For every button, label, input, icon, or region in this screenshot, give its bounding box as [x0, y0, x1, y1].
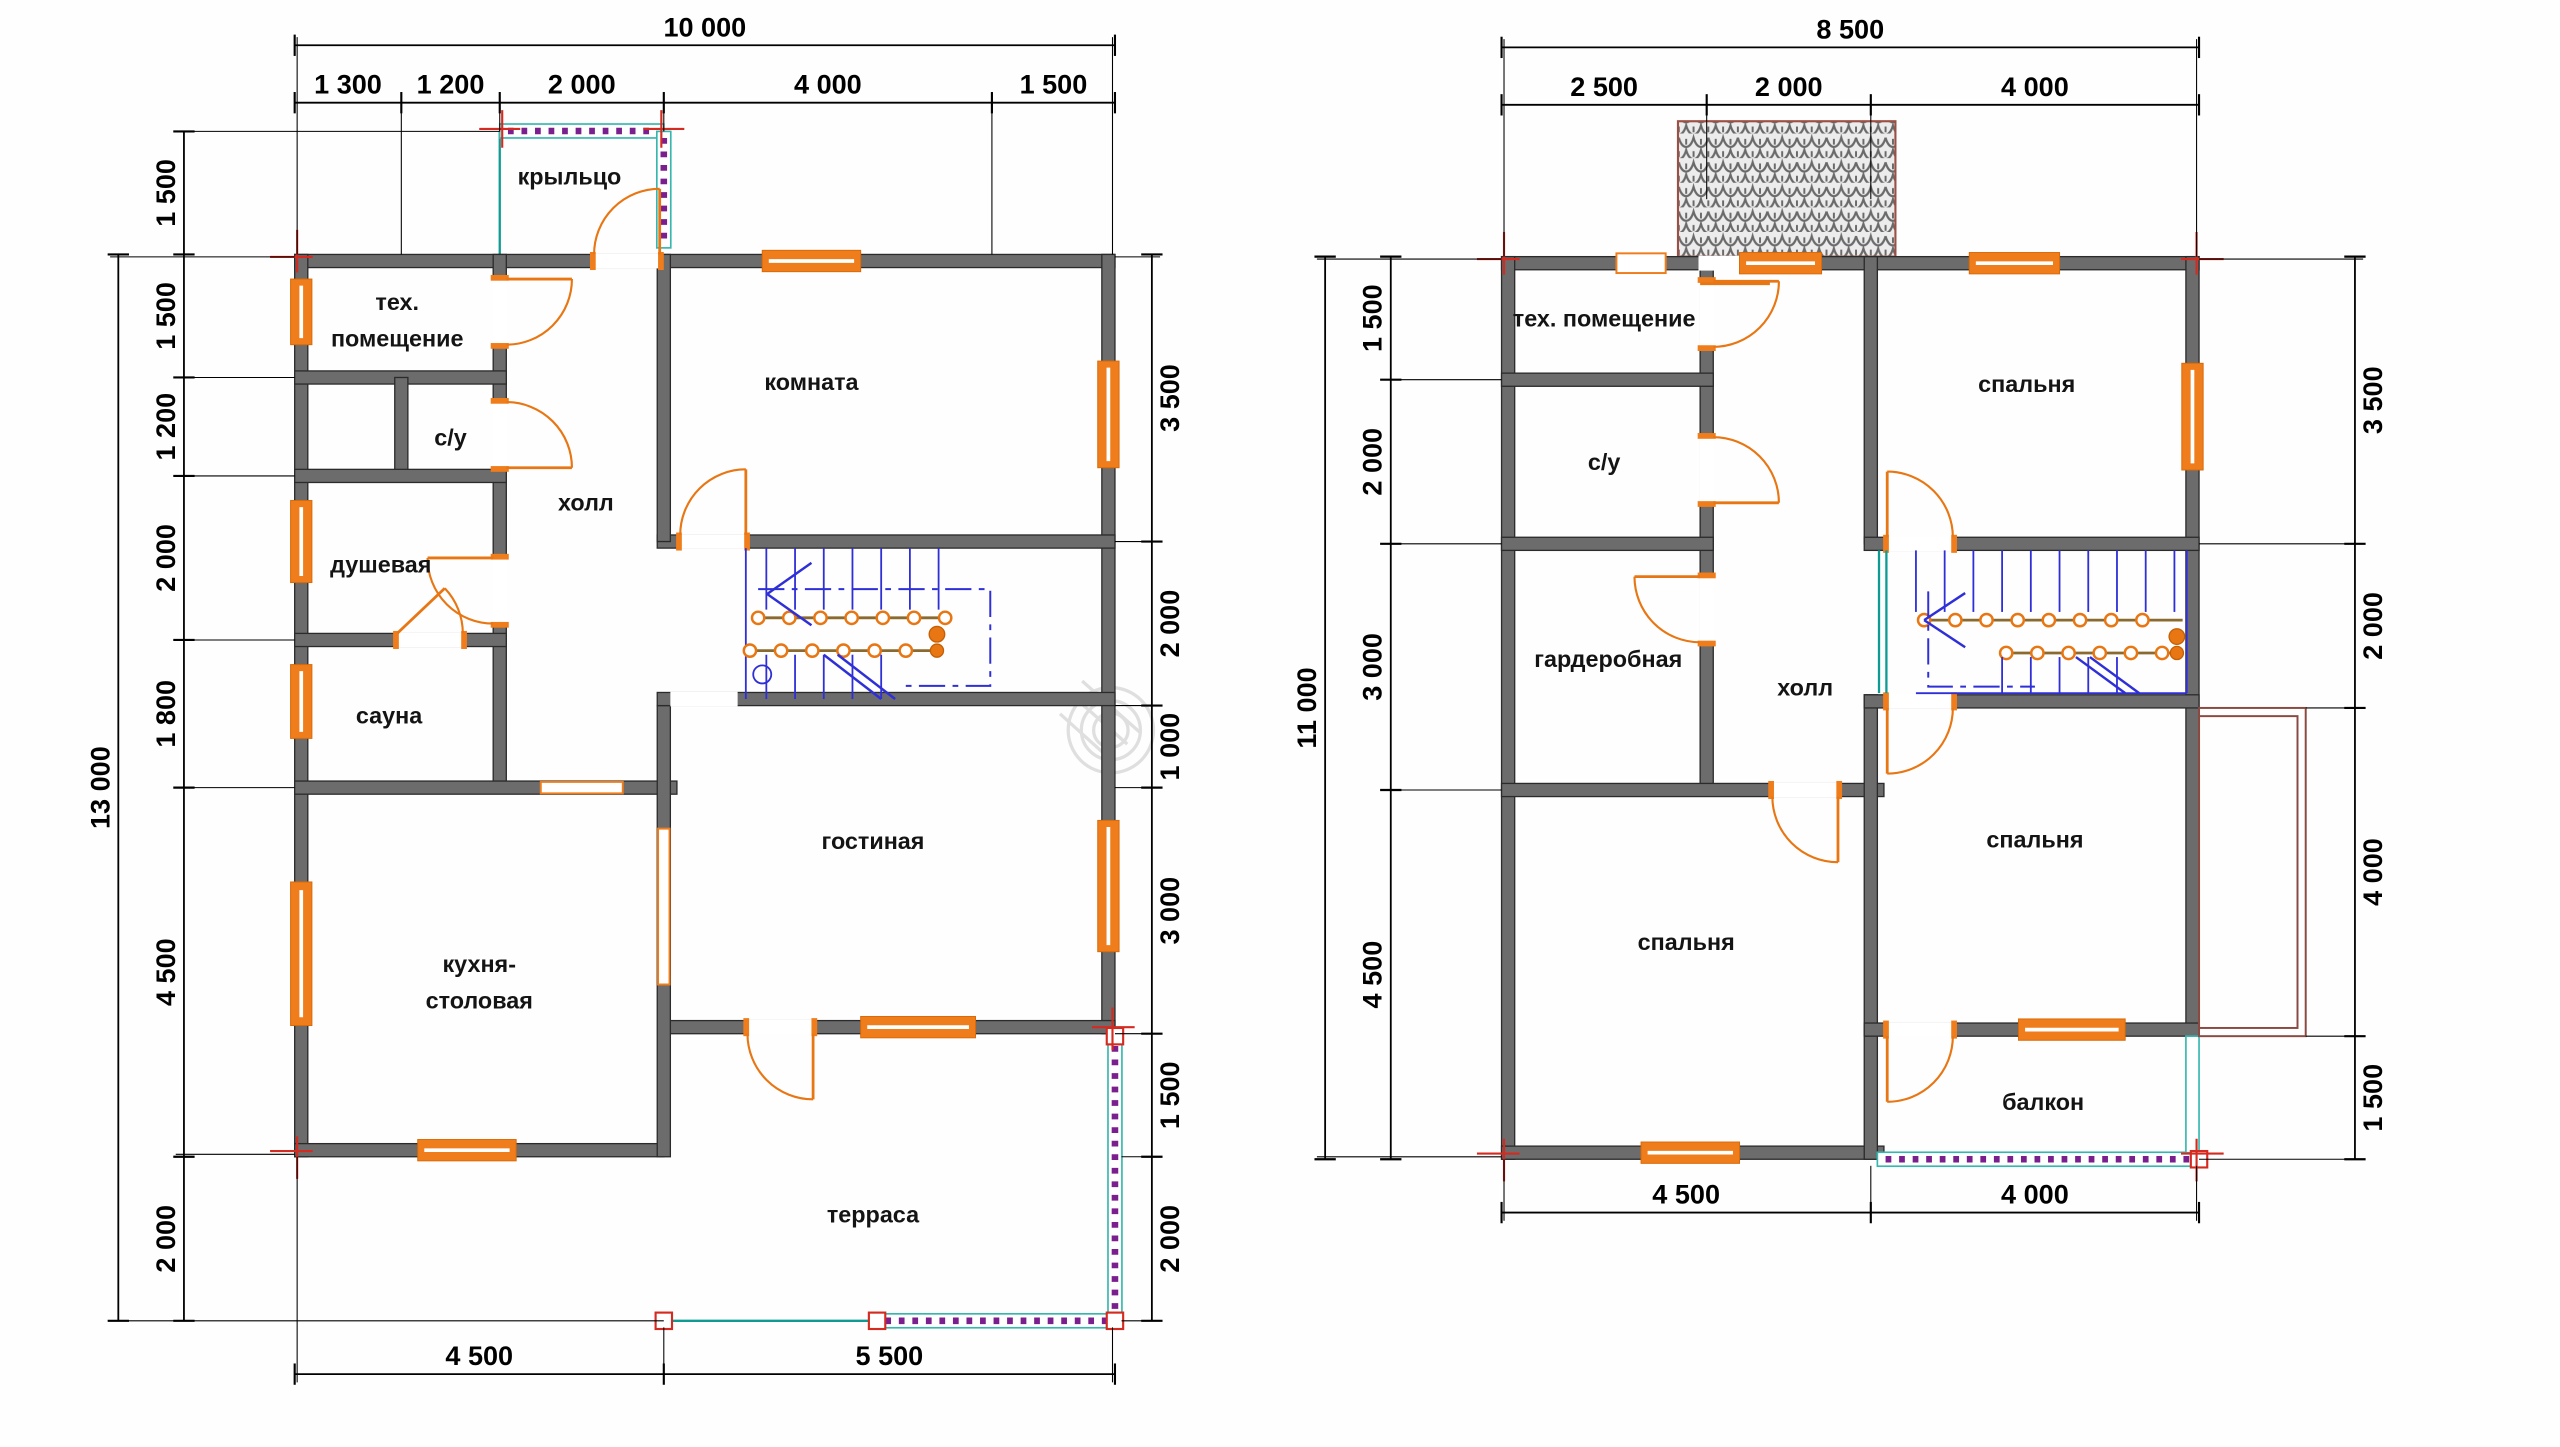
dim-p1-left-4: 1 800 — [151, 680, 181, 748]
dim-p1-top-2: 2 000 — [548, 70, 616, 100]
dim-p2-top-0: 2 500 — [1570, 71, 1638, 102]
dim-p2-right-1: 2 000 — [2357, 592, 2388, 660]
label-tech: тех. помещение — [1513, 305, 1696, 331]
label-kitchen2: столовая — [426, 987, 533, 1013]
label-tech: тех. — [375, 289, 419, 315]
dim-p1-top-0: 1 300 — [314, 70, 382, 100]
label-bedroom-left: спальня — [1638, 929, 1735, 955]
label-wardrobe: гардеробная — [1534, 646, 1682, 672]
label-wc: с/у — [1588, 449, 1621, 475]
label-tech2: помещение — [331, 325, 464, 351]
dim-p1-left-5: 4 500 — [151, 938, 181, 1006]
dim-p2-top-1: 2 000 — [1755, 71, 1823, 102]
floor-plans-drawing: крыльцо тех. помещение с/у душевая сауна… — [0, 0, 2560, 1447]
label-hall: холл — [558, 489, 614, 515]
dim-p1-right-2: 1 000 — [1155, 713, 1185, 781]
dim-p1-right-5: 2 000 — [1155, 1205, 1185, 1273]
dim-p1-right-4: 1 500 — [1155, 1061, 1185, 1129]
label-room: комната — [764, 369, 859, 395]
dim-p2-right-2: 4 000 — [2357, 838, 2388, 906]
dim-p1-bottom-0: 4 500 — [445, 1341, 513, 1371]
dim-p1-top-4: 1 500 — [1020, 70, 1088, 100]
dim-p1-right-0: 3 500 — [1155, 364, 1185, 432]
door-openings — [1698, 256, 1957, 1039]
dim-p1-top-3: 4 000 — [794, 70, 862, 100]
dim-p1-top-1: 1 200 — [417, 70, 485, 100]
dim-p1-left-0: 1 500 — [151, 159, 181, 227]
dim-p1-right-3: 3 000 — [1155, 877, 1185, 945]
label-bedroom-right: спальня — [1986, 826, 2083, 852]
label-shower: душевая — [330, 552, 431, 578]
dim-p1-left-2: 1 200 — [151, 393, 181, 461]
label-balcony: балкон — [2002, 1089, 2084, 1115]
staircase — [1879, 550, 2187, 693]
dim-p2-left-total: 11 000 — [1291, 667, 1322, 748]
label-wc: с/у — [434, 425, 466, 451]
dim-p2-left-3: 4 500 — [1357, 941, 1388, 1009]
balcony-railing — [1877, 708, 2305, 1168]
ground-floor-plan: крыльцо тех. помещение с/у душевая сауна… — [65, 0, 1238, 1444]
label-living: гостиная — [822, 828, 925, 854]
staircase — [744, 548, 990, 699]
dim-p2-right-3: 1 500 — [2357, 1064, 2388, 1132]
dim-p2-top-2: 4 000 — [2001, 71, 2069, 102]
label-bedroom-top: спальня — [1978, 371, 2075, 397]
dim-p2-right-0: 3 500 — [2357, 366, 2388, 434]
dim-p2-left-1: 2 000 — [1357, 428, 1388, 496]
dim-p1-left-1: 1 500 — [151, 282, 181, 350]
dim-p1-bottom-1: 5 500 — [856, 1341, 924, 1371]
room-labels: тех. помещение с/у гардеробная холл спал… — [1513, 305, 2084, 1115]
label-porch: крыльцо — [518, 164, 622, 190]
dim-p1-left-3: 2 000 — [151, 524, 181, 592]
dim-p1-left-total: 13 000 — [85, 746, 115, 829]
dim-p1-top-total: 10 000 — [663, 12, 746, 42]
terrace-railing — [656, 1028, 1124, 1329]
dim-p2-left-2: 3 000 — [1357, 633, 1388, 701]
second-floor-plan: тех. помещение с/у гардеробная холл спал… — [1280, 2, 2437, 1299]
porch-roof-hatch — [1678, 121, 1895, 256]
dim-p2-bottom-0: 4 500 — [1652, 1179, 1720, 1210]
door-openings — [393, 252, 817, 1036]
dim-p2-bottom-1: 4 000 — [2001, 1179, 2069, 1210]
label-terrace: терраса — [827, 1201, 920, 1227]
label-sauna: сауна — [356, 703, 423, 729]
label-hall: холл — [1777, 675, 1833, 701]
dim-p2-top-total: 8 500 — [1816, 13, 1884, 44]
dim-p1-left-6: 2 000 — [151, 1205, 181, 1273]
label-kitchen: кухня- — [442, 951, 515, 977]
dim-p2-left-0: 1 500 — [1357, 284, 1388, 352]
dim-p1-right-1: 2 000 — [1155, 590, 1185, 658]
